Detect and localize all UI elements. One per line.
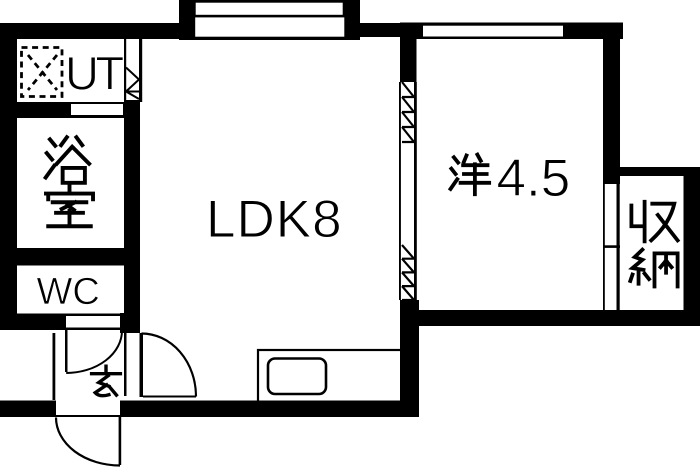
svg-text:LDK8: LDK8 — [206, 190, 343, 249]
svg-text:4.5: 4.5 — [497, 149, 571, 208]
svg-text:WC: WC — [37, 271, 100, 313]
svg-text:UT: UT — [65, 47, 123, 100]
